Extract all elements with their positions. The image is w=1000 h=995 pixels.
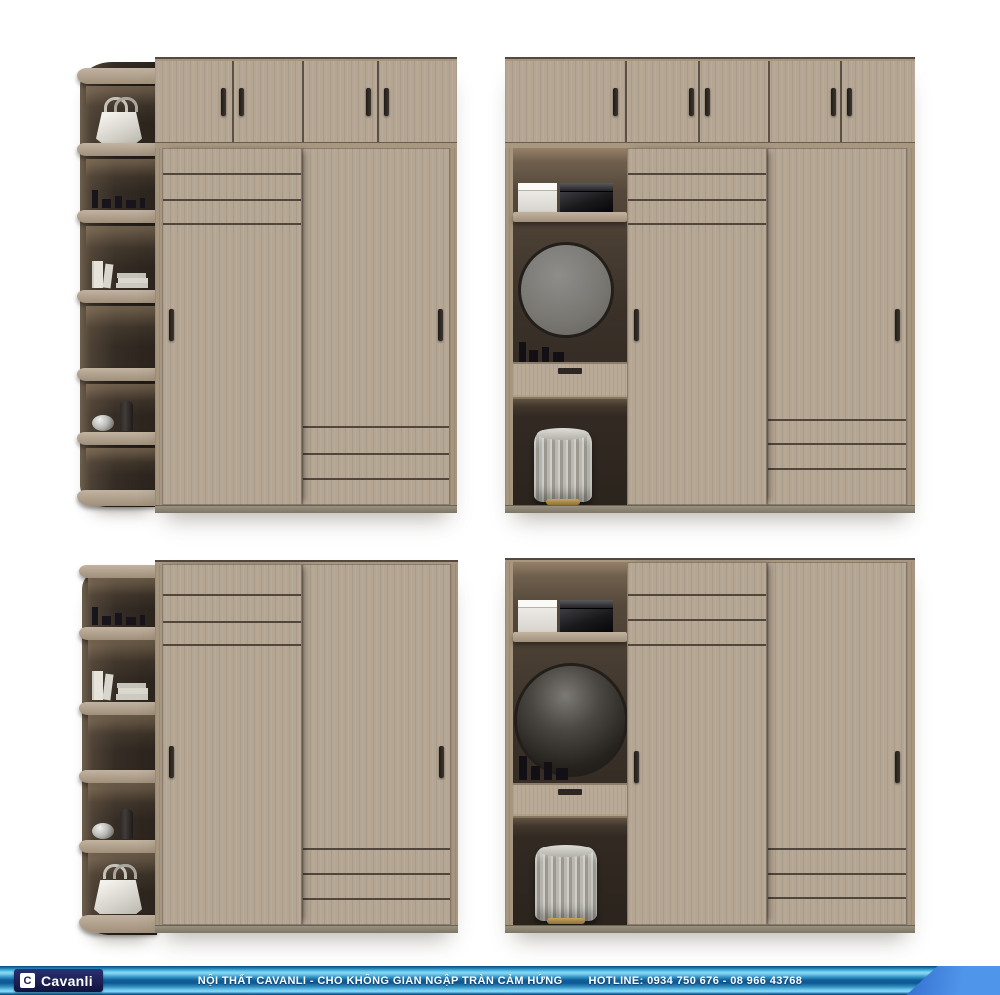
cabinet-divider [625,61,627,142]
cosmetic-bottles [519,340,571,362]
cabinet-handle [239,88,244,116]
corner-shelf-unit [80,62,157,507]
cabinet-handle [831,88,836,116]
side-frame [155,148,162,505]
sliding-door-right [302,148,450,505]
vanity-mirror [521,245,611,335]
shelf-cell [86,226,155,290]
storage-box-white [518,183,557,212]
cabinet-divider [302,61,304,142]
sliding-door-area [155,148,457,505]
shelf-cell [88,715,155,770]
door-handle [169,309,174,341]
base-plinth [505,505,915,513]
niche-light [513,395,627,429]
cabinet-divider [840,61,842,142]
vanity-drawer [513,362,627,399]
shelf-cell [86,448,155,490]
perfume-bottles [90,186,148,208]
shelf-cell [86,159,155,210]
vanity-stool [535,847,597,921]
wardrobe-variant-top-right [505,55,917,522]
cabinet-divider [232,61,234,142]
base-plinth [155,505,457,513]
sliding-door-right [767,148,907,505]
shelf-board [79,702,157,715]
handbag [94,864,142,914]
side-frame [505,562,513,925]
door-handle [439,746,444,778]
top-cabinet-row [505,61,915,142]
shelf-board [79,840,157,853]
shelf-cell [88,783,155,840]
decor-vase-silver [92,823,114,839]
side-frame [505,148,513,505]
shelf-cell [86,384,155,432]
sliding-door-area [155,564,458,925]
shelf-cell [88,578,155,627]
door-handle [895,309,900,341]
logo-mark: C [20,973,35,988]
side-frame [907,562,915,925]
decor-vase-dark [120,809,133,839]
vanity-niche [513,148,627,505]
base-plinth [155,925,458,933]
sliding-door-middle [627,148,767,505]
decor-vase-silver [92,415,114,431]
perfume-bottles [90,603,148,625]
banner-hotline: HOTLINE: 0934 750 676 - 08 966 43768 [589,975,803,987]
lower-section [505,148,915,505]
decor-vase-dark [120,401,133,431]
shelf-board [79,565,157,578]
cabinet-handle [221,88,226,116]
shelf-board [79,770,157,783]
shelf-board [79,915,157,933]
drawer-handle [558,368,582,374]
wardrobe-variant-bottom-right [505,556,917,938]
shelf-board [77,210,157,223]
side-frame [450,148,457,505]
sliding-door-left [162,148,302,505]
niche-shelf [513,632,627,642]
shelf-cell [88,853,155,915]
base-plinth [505,925,915,933]
shelf-cell [86,86,155,143]
door-handle [634,751,639,783]
storage-box-white [518,600,557,632]
wardrobe-variant-bottom-left [80,558,458,938]
wardrobe-cabinet [155,57,457,512]
shelf-board [79,627,157,640]
cosmetic-bottles [519,754,575,780]
shelf-board [77,68,157,84]
corner-shelf-unit [82,565,157,935]
cabinet-handle [847,88,852,116]
storage-box-black [560,183,613,212]
cabinet-divider [377,61,379,142]
banner-tagline: NỘI THẤT CAVANLI - CHO KHÔNG GIAN NGẬP T… [198,975,563,987]
drawer-handle [558,789,582,795]
door-handle [169,746,174,778]
cabinet-handle [613,88,618,116]
wardrobe-cabinet [155,560,458,932]
shelf-board [77,490,157,506]
niche-light [513,148,627,188]
niche-light [513,562,627,602]
wardrobe-variant-top-left [80,55,458,522]
vanity-stool [534,430,592,502]
sliding-door-left [162,564,302,925]
side-frame [451,564,458,925]
banner-accent-shape [870,966,1000,995]
wardrobe-cabinet [505,57,915,512]
brand-banner: C Cavanli NỘI THẤT CAVANLI - CHO KHÔNG G… [0,966,1000,995]
shelf-board [77,368,157,381]
shelf-board [77,290,157,303]
cabinet-handle [705,88,710,116]
side-frame [907,148,915,505]
sliding-door-middle [627,562,767,925]
door-handle [634,309,639,341]
cabinet-handle [366,88,371,116]
lower-section [505,562,915,925]
side-frame [155,564,162,925]
niche-shelf [513,212,627,222]
storage-box-black [560,600,613,632]
top-cabinet-row [155,61,457,142]
wardrobe-cabinet [505,558,915,932]
catalog-image: C Cavanli NỘI THẤT CAVANLI - CHO KHÔNG G… [0,0,1000,995]
shelf-cell [88,640,155,702]
cabinet-divider [698,61,700,142]
brand-logo: C Cavanli [14,969,103,992]
door-handle [438,309,443,341]
shelf-cell [86,306,155,368]
door-handle [895,751,900,783]
banner-text: NỘI THẤT CAVANLI - CHO KHÔNG GIAN NGẬP T… [140,966,860,995]
vanity-niche [513,562,627,925]
handbag [96,97,142,143]
sliding-door-right [302,564,451,925]
sliding-door-right [767,562,907,925]
cabinet-divider [768,61,770,142]
book-stack [90,668,150,700]
cabinet-handle [689,88,694,116]
book-stack [90,258,150,288]
vanity-drawer [513,783,627,818]
logo-text: Cavanli [41,973,93,989]
shelf-board [77,432,157,445]
shelf-board [77,143,157,156]
cabinet-handle [384,88,389,116]
